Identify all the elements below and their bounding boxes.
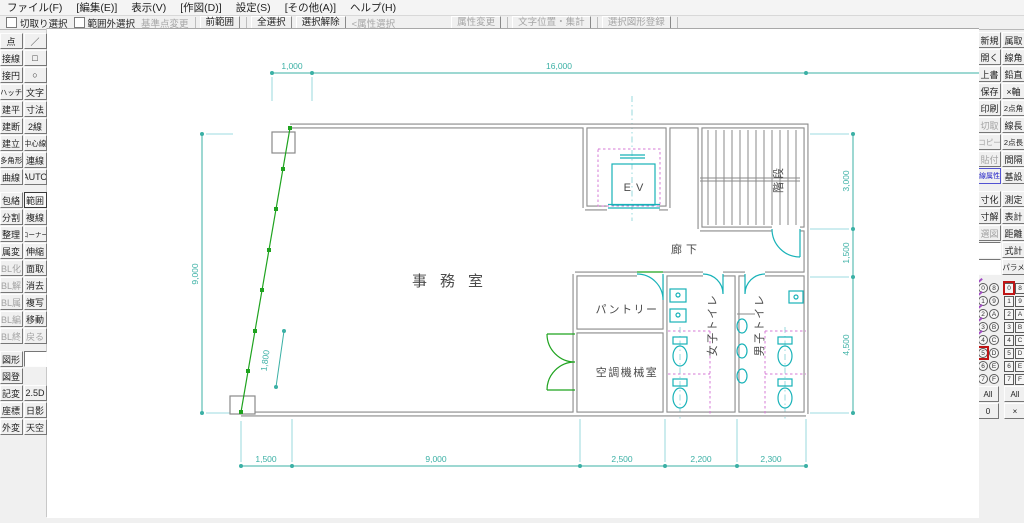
dim-bottom-2200: 2,200 — [690, 454, 712, 464]
layer-number: E — [1015, 361, 1024, 372]
layer-button-9[interactable]: 9 — [989, 295, 999, 307]
group-button-3[interactable]: 3 — [1004, 321, 1014, 333]
leftbar-r20-c2[interactable]: 2.5D — [24, 385, 47, 401]
leftbar-r13-c1[interactable]: BL化 — [0, 260, 23, 276]
layer-number: C — [1015, 335, 1024, 346]
dim-right-3000: 3,000 — [841, 170, 851, 192]
menu-item[interactable]: [編集(E)] — [69, 0, 124, 15]
layer-button-F[interactable]: F — [989, 373, 999, 385]
tool-row: 記変2.5D — [0, 385, 47, 401]
room-pantry: パントリー — [595, 303, 658, 316]
extension-lines — [206, 77, 849, 462]
tool-row: 保存×軸 — [978, 83, 1024, 99]
layer-number: 8 — [1015, 283, 1024, 294]
menu-item[interactable]: 設定(S) — [229, 0, 278, 15]
tool-row: 座標日影 — [0, 402, 47, 418]
tool-row: 切取線長 — [978, 117, 1024, 133]
dim-top-16000: 16,000 — [546, 61, 572, 71]
group-button-6[interactable]: 6 — [1004, 360, 1014, 372]
layer-button-4[interactable]: 4 — [978, 334, 988, 346]
right-tool-panel: 新規属取開く線角上書鉛直保存×軸印刷2点角切取線長コピー2点長貼付間隔線属性基設… — [979, 28, 1024, 517]
layer-number: F — [1015, 374, 1024, 385]
rightbar-r1-c2[interactable]: 線角 — [1002, 49, 1024, 65]
group-button-4[interactable]: 4 — [1004, 334, 1014, 346]
group-button-F[interactable]: F — [1015, 373, 1024, 385]
rightbar-r3-c1[interactable]: 保存 — [978, 83, 1001, 99]
layer-row: 3B3B — [978, 321, 1024, 333]
tool-row: 貼付間隔 — [978, 151, 1024, 167]
tool-row: BL解消去 — [0, 277, 47, 293]
room-corridor: 廊下 — [671, 242, 701, 256]
rightbar-r5-c1[interactable]: 切取 — [978, 117, 1001, 133]
layer-number: B — [1015, 322, 1024, 333]
menu-item[interactable]: ファイル(F) — [0, 0, 69, 15]
leftbar-r6-c2[interactable]: 中心線 — [24, 135, 47, 151]
group-button-B[interactable]: B — [1015, 321, 1024, 333]
room-ev: EV — [624, 182, 649, 194]
drawing-canvas[interactable]: 1,000 16,000 1,500 9,000 2,500 2,200 2,3… — [47, 28, 979, 518]
dim-bottom-1500: 1,500 — [255, 454, 277, 464]
layer-row: 4C4C — [978, 334, 1024, 346]
leftbar-r7-c2[interactable]: 連線 — [24, 152, 47, 168]
leftbar-r11-c2[interactable]: コーナー — [24, 226, 47, 242]
dim-bottom-2500: 2,500 — [611, 454, 633, 464]
leftbar-r16-c2[interactable]: 移動 — [24, 311, 47, 327]
layer-number: B — [989, 322, 999, 332]
layer-number: 4 — [1004, 335, 1014, 346]
layer-footer-row: 0× — [977, 403, 1024, 419]
layer-button-8[interactable]: 8 — [989, 282, 999, 294]
room-machine: 空調機械室 — [596, 365, 659, 379]
room-office: 事務室 — [412, 273, 496, 290]
layer-button-6[interactable]: 6 — [978, 360, 988, 372]
menu-item[interactable]: [その他(A)] — [278, 0, 343, 15]
rightbar-r9-c2[interactable]: 測定 — [1002, 191, 1024, 207]
group-button-5[interactable]: 5 — [1004, 347, 1014, 359]
tool-row: BL編移動 — [0, 311, 47, 327]
tool-row: 上書鉛直 — [978, 66, 1024, 82]
leftbar-r7-c1[interactable]: 多角形 — [0, 152, 23, 168]
rightbar-r13-c1 — [978, 259, 1001, 275]
tool-row: BL属複写 — [0, 294, 47, 310]
group-button-1[interactable]: 1 — [1004, 295, 1014, 307]
layer-number: 5 — [978, 348, 988, 358]
group-button-0[interactable]: 0 — [1004, 282, 1014, 294]
layer-number: 6 — [1004, 361, 1014, 372]
leftbar-r6-c1[interactable]: 建立 — [0, 135, 23, 151]
leftbar-r0-c1[interactable]: 点 — [0, 33, 23, 49]
leftbar-r0-c2[interactable]: ／ — [24, 33, 47, 49]
leftbar-r16-c1[interactable]: BL編 — [0, 311, 23, 327]
layer-footer-button[interactable]: 0 — [977, 403, 999, 419]
stairs-treads — [700, 130, 800, 314]
layer-number: 9 — [989, 296, 999, 306]
rightbar-r12-c1 — [978, 242, 1001, 258]
layer-number: 0 — [1004, 283, 1014, 294]
leftbar-r3-c2[interactable]: 文字 — [24, 84, 47, 100]
tool-row: 建立中心線 — [0, 135, 47, 151]
leftbar-r21-c2[interactable]: 日影 — [24, 402, 47, 418]
tool-row: BL化面取 — [0, 260, 47, 276]
tool-row: 建断2線 — [0, 118, 47, 134]
layer-button-B[interactable]: B — [989, 321, 999, 333]
menu-item[interactable]: [作図(D)] — [173, 0, 228, 15]
leftbar-r14-c2[interactable]: 消去 — [24, 277, 47, 293]
rightbar-r11-c1[interactable]: 選図 — [978, 225, 1001, 241]
tool-row: 建平寸法 — [0, 101, 47, 117]
rightbar-r2-c2[interactable]: 鉛直 — [1002, 66, 1024, 82]
leftbar-r15-c2[interactable]: 複写 — [24, 294, 47, 310]
layer-row: 5D5D — [978, 347, 1024, 359]
leftbar-r19-c1[interactable]: 図登 — [0, 368, 23, 384]
rightbar-r6-c1[interactable]: コピー — [978, 134, 1001, 150]
rightbar-r8-c1[interactable]: 線属性 — [978, 168, 1001, 184]
tool-row: 寸化測定 — [978, 191, 1024, 207]
leftbar-r5-c2[interactable]: 2線 — [24, 118, 47, 134]
group-button-D[interactable]: D — [1015, 347, 1024, 359]
checkbox-icon[interactable] — [74, 17, 85, 28]
menu-item[interactable]: ヘルプ(H) — [343, 0, 403, 15]
dim-wall-1800: 1,800 — [259, 349, 272, 372]
layer-number: C — [989, 335, 999, 345]
toolbar-separator — [597, 17, 598, 29]
room-stairs: 階段 — [771, 165, 785, 193]
tool-row: 図形 — [0, 351, 47, 367]
leftbar-r1-c2[interactable]: □ — [24, 50, 47, 66]
group-button-2[interactable]: 2 — [1004, 308, 1014, 320]
toolbar-separator — [507, 17, 508, 29]
leftbar-r14-c1[interactable]: BL解 — [0, 277, 23, 293]
rightbar-r6-c2[interactable]: 2点長 — [1002, 134, 1024, 150]
layer-number: 1 — [1004, 296, 1014, 307]
tool-row: 印刷2点角 — [978, 100, 1024, 116]
left-tool-panel: 点／接線□接円○ハッチ文字建平寸法建断2線建立中心線多角形連線曲線AUTO包絡範… — [0, 28, 47, 517]
layer-row: 0808 — [978, 282, 1024, 294]
rightbar-r10-c1[interactable]: 寸解 — [978, 208, 1001, 224]
rightbar-r5-c2[interactable]: 線長 — [1002, 117, 1024, 133]
layer-number: 4 — [978, 335, 988, 345]
rightbar-r7-c1[interactable]: 貼付 — [978, 151, 1001, 167]
layer-button-C[interactable]: C — [989, 334, 999, 346]
tool-row: パラメ — [978, 259, 1024, 275]
room-mens-toilet: 男子トイレ — [753, 294, 766, 357]
tool-row: 線属性基設 — [978, 168, 1024, 184]
leftbar-r15-c1[interactable]: BL属 — [0, 294, 23, 310]
tool-row: 開く線角 — [978, 49, 1024, 65]
layer-row: 6E6E — [978, 360, 1024, 372]
layer-footer-button[interactable]: All — [977, 386, 999, 402]
layer-number: F — [989, 374, 999, 384]
rightbar-r7-c2[interactable]: 間隔 — [1002, 151, 1024, 167]
leftbar-r11-c1[interactable]: 整理 — [0, 226, 23, 242]
room-womens-toilet: 女子トイレ — [705, 294, 719, 357]
layer-footer-button[interactable]: All — [1004, 386, 1024, 402]
layer-number: E — [989, 361, 999, 371]
rightbar-r0-c1[interactable]: 新規 — [978, 32, 1001, 48]
dimension-points — [200, 71, 855, 468]
leftbar-r9-c1[interactable]: 包絡 — [0, 192, 23, 208]
dim-bottom-9000: 9,000 — [425, 454, 447, 464]
tool-row: 分割複線 — [0, 209, 47, 225]
leftbar-r22-c2[interactable]: 天空 — [24, 419, 47, 435]
leftbar-r22-c1[interactable]: 外変 — [0, 419, 23, 435]
dim-right-4500: 4,500 — [841, 334, 851, 356]
group-button-8[interactable]: 8 — [1015, 282, 1024, 294]
rightbar-r4-c2[interactable]: 2点角 — [1002, 100, 1024, 116]
toolbar-separator — [677, 17, 678, 29]
layer-button-7[interactable]: 7 — [978, 373, 988, 385]
group-button-E[interactable]: E — [1015, 360, 1024, 372]
toolbar-separator — [246, 17, 247, 29]
group-button-9[interactable]: 9 — [1015, 295, 1024, 307]
rightbar-r4-c1[interactable]: 印刷 — [978, 100, 1001, 116]
tool-row: 外変天空 — [0, 419, 47, 435]
rightbar-r10-c2[interactable]: 表計 — [1002, 208, 1024, 224]
dimension-labels: 1,000 16,000 1,500 9,000 2,500 2,200 2,3… — [190, 61, 851, 464]
tool-row: BL終戻る — [0, 328, 47, 344]
layer-footer-button[interactable]: × — [1004, 403, 1024, 419]
rightbar-r0-c2[interactable]: 属取 — [1002, 32, 1024, 48]
layer-number: 5 — [1004, 348, 1014, 359]
layer-number: 7 — [1004, 374, 1014, 385]
toolbar-separator — [195, 17, 196, 29]
layer-number: 9 — [1015, 296, 1024, 307]
rightbar-r13-c2[interactable]: パラメ — [1002, 259, 1024, 275]
layer-button-5[interactable]: 5 — [978, 347, 988, 359]
tool-row: 式計 — [978, 242, 1024, 258]
rightbar-r9-c1[interactable]: 寸化 — [978, 191, 1001, 207]
layer-number: 6 — [978, 361, 988, 371]
group-button-7[interactable]: 7 — [1004, 373, 1014, 385]
dimension-lines — [202, 73, 979, 466]
layer-number: D — [989, 348, 999, 358]
leftbar-r8-c2[interactable]: AUTO — [24, 169, 47, 185]
tool-row: 整理コーナー — [0, 226, 47, 242]
leftbar-r21-c1[interactable]: 座標 — [0, 402, 23, 418]
tool-row: 選図距離 — [978, 225, 1024, 241]
leftbar-r12-c2[interactable]: 伸縮 — [24, 243, 47, 259]
rightbar-r2-c1[interactable]: 上書 — [978, 66, 1001, 82]
menu-item[interactable]: 表示(V) — [124, 0, 173, 15]
leftbar-r5-c1[interactable]: 建断 — [0, 118, 23, 134]
tool-row: 図登 — [0, 368, 47, 384]
leftbar-r10-c1[interactable]: 分割 — [0, 209, 23, 225]
menu-bar: ファイル(F)[編集(E)]表示(V)[作図(D)]設定(S)[その他(A)]ヘ… — [0, 0, 1024, 16]
dim-left-9000: 9,000 — [190, 263, 200, 285]
layer-number: 7 — [978, 374, 988, 384]
leftbar-r17-c1[interactable]: BL終 — [0, 328, 23, 344]
layer-row: 1919 — [978, 295, 1024, 307]
leftbar-r2-c1[interactable]: 接円 — [0, 67, 23, 83]
layer-button-D[interactable]: D — [989, 347, 999, 359]
tool-row: 新規属取 — [978, 32, 1024, 48]
tool-row: 包絡範囲 — [0, 192, 47, 208]
tool-row: 接線□ — [0, 50, 47, 66]
layer-row: 7F7F — [978, 373, 1024, 385]
leftbar-r2-c2[interactable]: ○ — [24, 67, 47, 83]
dim-top-1000: 1,000 — [281, 61, 303, 71]
rightbar-r12-c2[interactable]: 式計 — [1002, 242, 1024, 258]
tool-row: 接円○ — [0, 67, 47, 83]
tool-row: ハッチ文字 — [0, 84, 47, 100]
layer-row: 2A2A — [978, 308, 1024, 320]
leftbar-r4-c2[interactable]: 寸法 — [24, 101, 47, 117]
tool-row: 属変伸縮 — [0, 243, 47, 259]
leftbar-r1-c1[interactable]: 接線 — [0, 50, 23, 66]
layer-number: 8 — [989, 283, 999, 293]
rightbar-r8-c2[interactable]: 基設 — [1002, 168, 1024, 184]
dim-right-1500: 1,500 — [841, 242, 851, 264]
layer-number: 2 — [1004, 309, 1014, 320]
leftbar-r3-c1[interactable]: ハッチ — [0, 84, 23, 100]
group-button-C[interactable]: C — [1015, 334, 1024, 346]
rightbar-r11-c2[interactable]: 距離 — [1002, 225, 1024, 241]
leftbar-r9-c2[interactable]: 範囲 — [24, 192, 47, 208]
leftbar-r12-c1[interactable]: 属変 — [0, 243, 23, 259]
layer-number: A — [1015, 309, 1024, 320]
layer-number: D — [1015, 348, 1024, 359]
tool-row: 点／ — [0, 33, 47, 49]
leftbar-r17-c2[interactable]: 戻る — [24, 328, 47, 344]
layer-number: A — [989, 309, 999, 319]
dim-bottom-2300: 2,300 — [760, 454, 782, 464]
tool-row: 多角形連線 — [0, 152, 47, 168]
walls — [230, 126, 806, 414]
layer-button-A[interactable]: A — [989, 308, 999, 320]
rightbar-r3-c2[interactable]: ×軸 — [1002, 83, 1024, 99]
leftbar-r10-c2[interactable]: 複線 — [24, 209, 47, 225]
tool-row: コピー2点長 — [978, 134, 1024, 150]
rightbar-r1-c1[interactable]: 開く — [978, 49, 1001, 65]
leftbar-r4-c1[interactable]: 建平 — [0, 101, 23, 117]
tool-row: 寸解表計 — [978, 208, 1024, 224]
leftbar-r18-c2 — [24, 351, 47, 367]
layer-footer-row: AllAll — [977, 386, 1024, 402]
leftbar-r8-c1[interactable]: 曲線 — [0, 169, 23, 185]
leftbar-r13-c2[interactable]: 面取 — [24, 260, 47, 276]
group-button-A[interactable]: A — [1015, 308, 1024, 320]
tool-row: 曲線AUTO — [0, 169, 47, 185]
leftbar-r20-c1[interactable]: 記変 — [0, 385, 23, 401]
layer-number: 3 — [1004, 322, 1014, 333]
checkbox-icon[interactable] — [6, 17, 17, 28]
leftbar-r18-c1[interactable]: 図形 — [0, 351, 23, 367]
layer-button-E[interactable]: E — [989, 360, 999, 372]
